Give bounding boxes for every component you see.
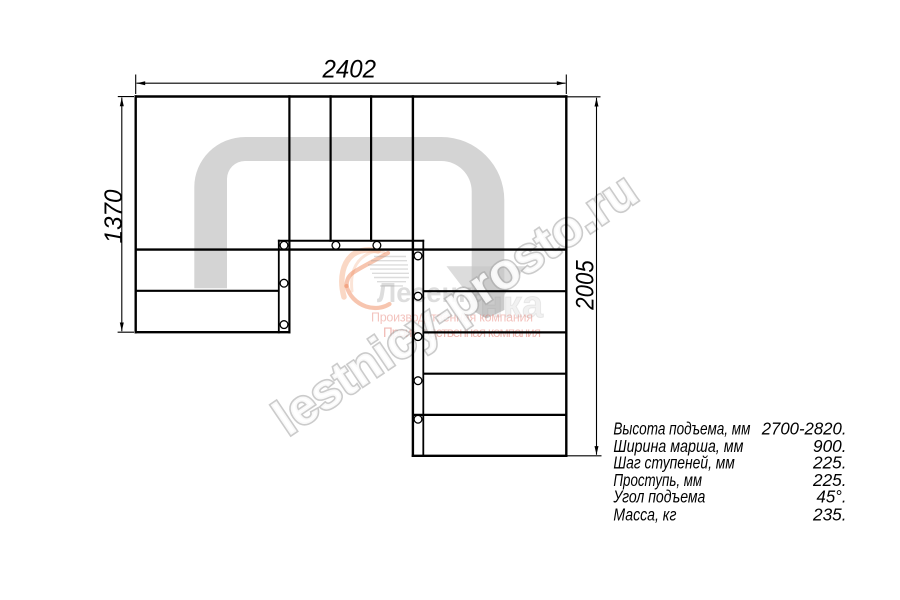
svg-text:Масса, кг: Масса, кг	[613, 505, 676, 525]
svg-text:235.: 235.	[812, 505, 846, 525]
svg-text:2402: 2402	[322, 56, 377, 84]
svg-text:1370: 1370	[100, 189, 128, 243]
svg-text:2005: 2005	[571, 260, 599, 310]
